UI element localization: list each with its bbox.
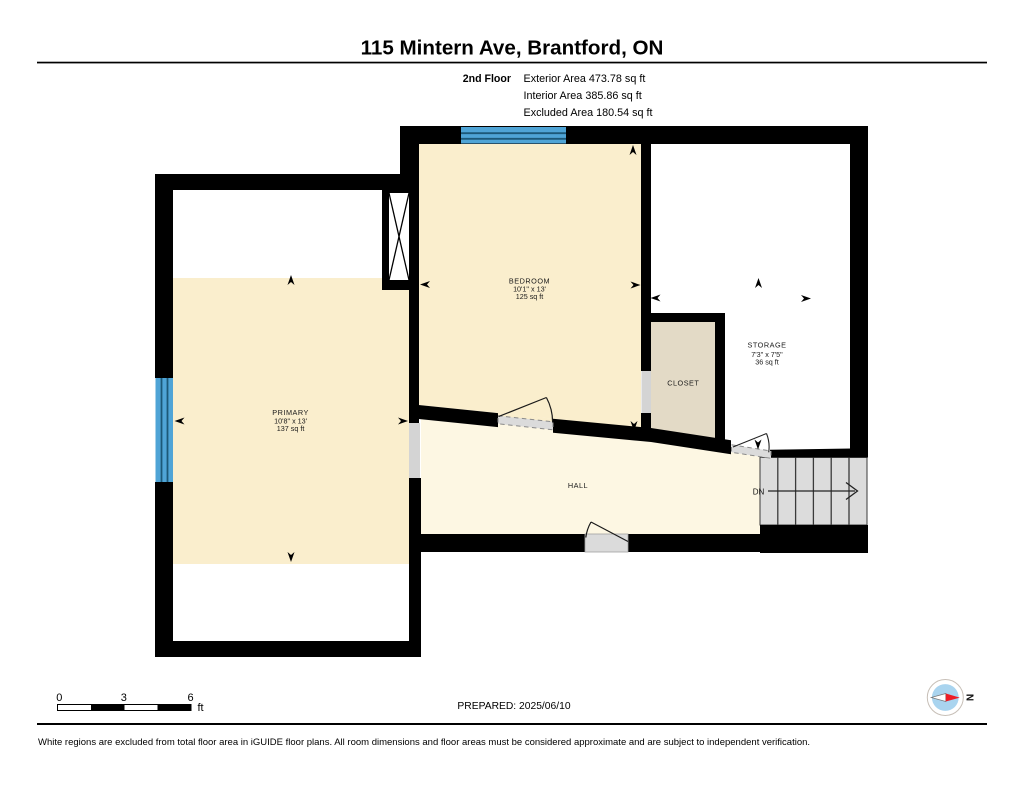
svg-text:6: 6 — [187, 692, 193, 704]
svg-text:HALL: HALL — [568, 481, 588, 490]
svg-text:125 sq ft: 125 sq ft — [516, 292, 544, 301]
svg-text:2nd Floor: 2nd Floor — [463, 73, 511, 85]
svg-text:ft: ft — [198, 702, 204, 714]
svg-text:36 sq ft: 36 sq ft — [755, 357, 779, 366]
svg-text:Excluded Area 180.54 sq ft: Excluded Area 180.54 sq ft — [524, 107, 653, 119]
svg-text:3: 3 — [121, 692, 127, 704]
svg-text:Exterior Area 473.78 sq ft: Exterior Area 473.78 sq ft — [524, 73, 646, 85]
svg-text:Interior Area 385.86 sq ft: Interior Area 385.86 sq ft — [524, 90, 642, 102]
svg-text:CLOSET: CLOSET — [667, 378, 699, 387]
svg-text:0: 0 — [56, 692, 62, 704]
svg-text:PREPARED: 2025/06/10: PREPARED: 2025/06/10 — [457, 701, 570, 712]
svg-text:N: N — [964, 694, 975, 701]
svg-text:STORAGE: STORAGE — [747, 340, 786, 349]
svg-text:115 Mintern Ave, Brantford, ON: 115 Mintern Ave, Brantford, ON — [361, 37, 664, 60]
svg-text:DN: DN — [753, 487, 765, 496]
svg-text:137 sq ft: 137 sq ft — [277, 424, 305, 433]
svg-text:White regions are excluded fro: White regions are excluded from total fl… — [38, 737, 810, 748]
